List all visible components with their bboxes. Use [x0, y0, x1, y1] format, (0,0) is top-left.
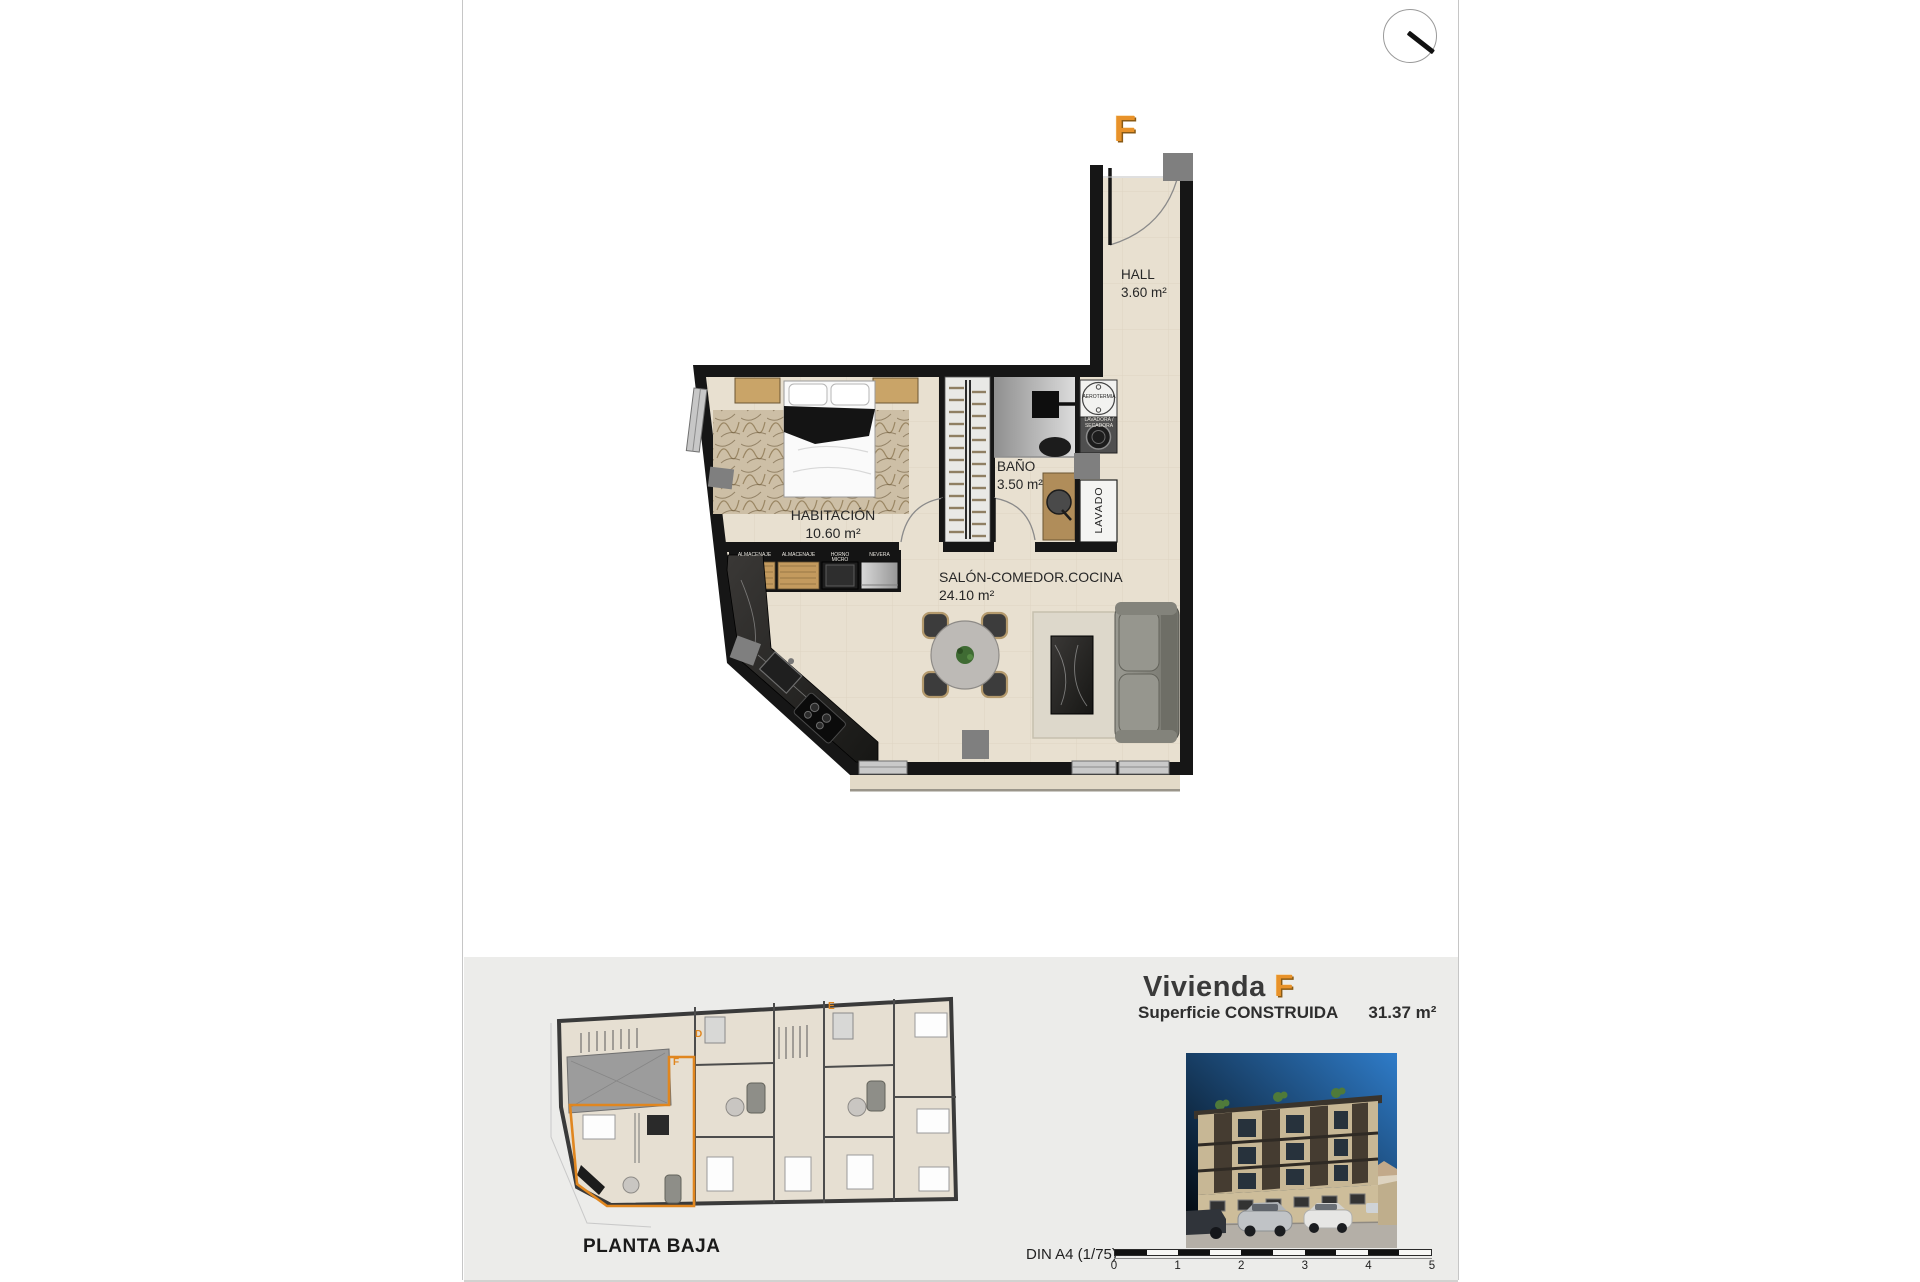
- salon-label: SALÓN-COMEDOR.COCINA 24.10 m²: [939, 568, 1123, 604]
- site-plan-letter-f: F: [673, 1057, 679, 1068]
- surface-line: Superficie CONSTRUIDA 31.37 m²: [1138, 1003, 1436, 1023]
- plan-unit-letter: F: [1114, 108, 1136, 150]
- dwelling-title-text: Vivienda: [1143, 971, 1266, 1003]
- partition-wall: [1035, 542, 1117, 552]
- scale-tick-0: 0: [1111, 1260, 1117, 1272]
- habitacion-label: HABITACIÓN 10.60 m²: [763, 506, 903, 542]
- nightstand-left: [735, 378, 780, 403]
- building-photo-drawing: [1186, 1053, 1397, 1248]
- dwelling-unit-letter: F: [1274, 968, 1293, 1003]
- building-photo: [1186, 1053, 1397, 1248]
- pillow: [789, 384, 827, 405]
- partition-wall: [943, 542, 994, 552]
- dwelling-title: Vivienda F: [1143, 968, 1294, 1004]
- coffee-table: [1051, 636, 1093, 714]
- wardrobe: [939, 377, 995, 542]
- terrace: [850, 775, 1180, 792]
- site-plan-letter-e: E: [828, 1001, 835, 1012]
- site-plan: D E F: [547, 987, 981, 1230]
- scale-tick-4: 4: [1365, 1260, 1371, 1272]
- scale-bar: DIN A4 (1/75) 0 1 2 3 4 5: [1026, 1245, 1436, 1277]
- site-plan-title: PLANTA BAJA: [583, 1236, 720, 1258]
- scale-bar-segments: [1114, 1249, 1432, 1256]
- sheet-left-border: [462, 0, 463, 1280]
- bathroom-sink: [1047, 490, 1071, 514]
- surface-label: Superficie CONSTRUIDA: [1138, 1003, 1338, 1022]
- car-far: [1366, 1203, 1380, 1213]
- floor-plan: F HALL 3.60 m² BAÑO 3.50 m² HABITACIÓN 1…: [663, 100, 1223, 800]
- scale-tick-2: 2: [1238, 1260, 1244, 1272]
- floorplan-sheet: { "plan": { "unit_letter": "F", "hall": …: [0, 0, 1920, 1280]
- lavado-label: LAVADO: [1069, 480, 1129, 540]
- floor-plan-drawing: [663, 100, 1223, 800]
- north-needle: [1407, 31, 1435, 54]
- cabinet-label-4: NEVERA: [861, 553, 898, 559]
- scale-tick-3: 3: [1302, 1260, 1308, 1272]
- lavadora-label: LAVADORA / SECADORA: [1081, 418, 1117, 430]
- scale-baseline: [1114, 1258, 1432, 1259]
- nightstand-right: [873, 378, 918, 403]
- hall-label: HALL 3.60 m²: [1121, 266, 1167, 301]
- cabinet-label-1: ALMACENAJE: [734, 553, 775, 559]
- pillow: [831, 384, 869, 405]
- site-plan-drawing: [547, 987, 981, 1230]
- toilet: [1039, 437, 1071, 457]
- site-plan-letter-d: D: [695, 1029, 702, 1040]
- scale-tick-1: 1: [1174, 1260, 1180, 1272]
- coffee-table-rug: [1033, 612, 1117, 738]
- sheet-right-border: [1458, 0, 1459, 1280]
- cabinet-label-3: HORNO MICRO: [822, 553, 858, 565]
- surface-value: 31.37 m²: [1368, 1003, 1436, 1022]
- aerotermia-label: AEROTERMIA: [1081, 395, 1117, 401]
- scale-tick-5: 5: [1429, 1260, 1435, 1272]
- bano-label: BAÑO 3.50 m²: [997, 458, 1043, 493]
- cabinet-label-2: ALMACENAJE: [778, 553, 819, 559]
- north-indicator-icon: [1383, 9, 1437, 63]
- building-side: [1378, 1181, 1397, 1225]
- sofa: [1115, 602, 1179, 743]
- shower-fixture: [1032, 391, 1059, 418]
- scale-label: DIN A4 (1/75): [1026, 1246, 1117, 1263]
- dining-table: [923, 613, 1007, 697]
